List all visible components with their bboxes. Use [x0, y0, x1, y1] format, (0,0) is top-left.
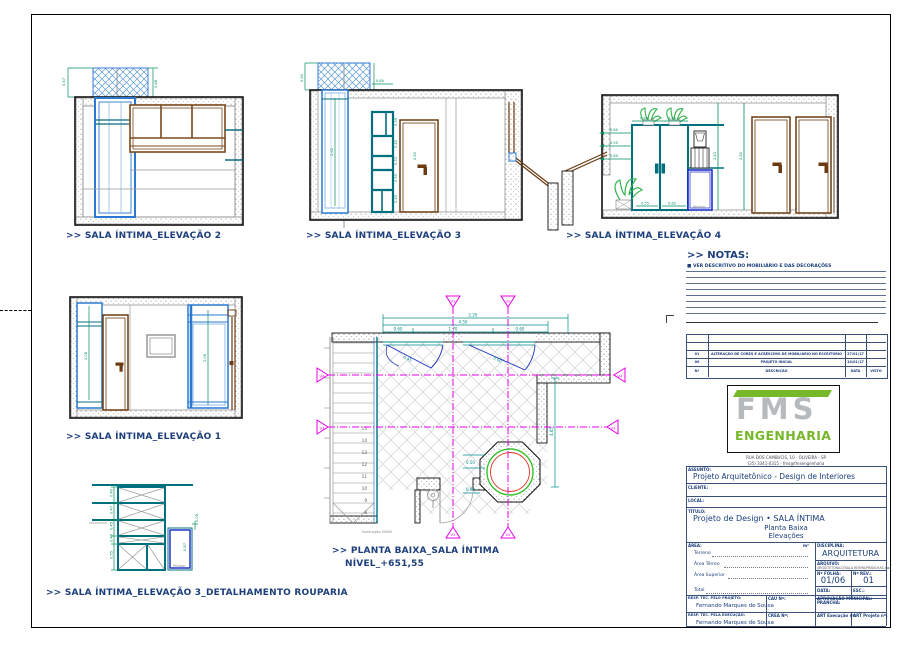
dim-label: 0.80: [376, 79, 385, 83]
dim-label: 0.47: [62, 78, 66, 86]
floor-plan-drawing: 8 9 10 11 12 13 14 15 0.45 0.60: [303, 288, 641, 543]
dim-label: 2.62: [330, 148, 334, 156]
dim-label: 0.33: [394, 157, 398, 165]
dim-label: 2.08: [203, 353, 207, 362]
revision-table-line: [686, 350, 886, 351]
dim-label: 0.90: [466, 487, 475, 492]
wood-door: [400, 120, 438, 212]
leader-line: [712, 555, 808, 557]
dim-label: 0.45: [110, 522, 114, 530]
dim-label: 0.40: [110, 488, 114, 497]
dim-label: 0.50: [300, 73, 304, 82]
wood-window: [130, 105, 225, 152]
titleblock-border: [686, 466, 687, 626]
glass-window: [188, 305, 228, 408]
glass-panel: [77, 303, 102, 408]
dim-label: 0.48: [154, 79, 158, 88]
drawing-sheet: 0.47 0.48 1.05: [0, 0, 922, 654]
area-total: Total: [694, 588, 705, 593]
dim-label: 0.55: [641, 202, 649, 206]
elevation-1-title: >> SALA ÍNTIMA_ELEVAÇÃO 1: [66, 432, 221, 442]
stair-number: 8: [364, 510, 367, 515]
elevation-2-drawing: 0.47 0.48 1.05: [60, 58, 260, 230]
dim-label: 0.35: [394, 118, 398, 126]
revision-number: 01: [686, 352, 708, 356]
elevation-3-title: >> SALA ÍNTIMA_ELEVAÇÃO 3: [306, 231, 461, 241]
cliente-label: CLIENTE:: [688, 485, 708, 490]
area-unit: m²: [803, 543, 809, 548]
dim-label: 0.60: [668, 117, 677, 121]
dim-label: 0.60: [516, 327, 525, 332]
section-marker-label: V4: [319, 374, 325, 379]
rev-value: 01: [851, 576, 886, 586]
titleblock-line: [686, 496, 886, 497]
glazed-door: [95, 98, 135, 217]
titleblock-line: [686, 483, 886, 484]
dim-label: 0.05: [195, 514, 199, 522]
stair-number: 12: [362, 462, 368, 467]
stair-number: 9: [364, 498, 367, 503]
glazed-door: [322, 90, 348, 213]
area-label: ÁREA:: [688, 543, 702, 548]
stair-post: [562, 171, 573, 225]
art-projeto-label: ART Projeto nº:: [853, 613, 888, 618]
company-address-line1: RUA DOS CAMBUCIS, 10 - OLIVEIRA - SP: [686, 455, 886, 460]
stair-number: 10: [362, 486, 368, 491]
minibar-label: Minibar: [173, 564, 186, 568]
revision-header-num: Nº: [686, 369, 708, 373]
fold-mark: [0, 310, 31, 311]
notes-rule: [686, 289, 886, 290]
wood-door: [752, 117, 790, 213]
titleblock-border: [886, 466, 887, 626]
notes-rule: [686, 283, 886, 284]
floor-plan-level: NÍVEL_+651,55: [345, 559, 424, 569]
dim-label: 4.50: [459, 320, 468, 325]
revision-table-line: [686, 342, 886, 343]
resp-execucao-value: Fernando Marques de Sousa: [696, 620, 774, 626]
titleblock-line: [686, 626, 886, 627]
stair-number: 14: [362, 438, 368, 443]
dim-label: 0.40: [394, 194, 398, 203]
notes-rule: [686, 301, 886, 302]
dim-label: 2.50: [413, 151, 417, 160]
floor-plan-title: >> PLANTA BAIXA_SALA ÍNTIMA: [332, 546, 499, 556]
titulo-value: Projeto de Design • SALA ÍNTIMA: [693, 514, 825, 523]
dim-label: 2.08: [84, 351, 88, 360]
dim-label: 2.20: [469, 313, 478, 318]
detail-rouparia-drawing: 0.40 0.47 0.45 0.47 0.55 Minibar 0.05 0.…: [85, 478, 220, 580]
dim-label: 2.43: [713, 152, 717, 160]
resp-projeto-value: Fernando Marques de Sousa: [696, 603, 774, 609]
notes-rule: [686, 277, 886, 278]
dim-label: 0.87: [183, 543, 187, 551]
notes-separator: [686, 322, 878, 323]
revision-description: PROJETO INICIAL: [708, 360, 845, 364]
dim-label: 0.62: [668, 202, 676, 206]
dim-label: 0.60: [610, 154, 619, 158]
disciplina-label: DISCIPLINA:: [817, 543, 844, 548]
section-marker-label: V4: [617, 374, 623, 379]
jacuzzi: [480, 442, 540, 502]
arquivo-value: ARQUITETONICO/SALA INTIMA/PRANCHAS.dwg: [817, 566, 891, 570]
section-marker-label: V3: [319, 426, 325, 431]
esc-label: ESC.:: [853, 588, 865, 593]
elevation-3-drawing: 0.50 0.80 2.62 0.35 0.40: [300, 58, 562, 236]
minibar: Minibar: [688, 170, 712, 210]
minibar: Minibar: [168, 528, 192, 570]
revision-date: 14/01/17: [845, 360, 866, 364]
dim-label: 0.60: [640, 117, 649, 121]
minibar-label: Minibar: [693, 205, 706, 209]
titleblock-line: [686, 542, 886, 543]
elevation-4-title: >> SALA ÍNTIMA_ELEVAÇÃO 4: [566, 231, 721, 241]
revision-table-line: [686, 366, 886, 367]
notes-title: >> NOTAS:: [687, 250, 749, 261]
dim-label: 0.47: [110, 534, 114, 542]
dim-label: 0.47: [110, 506, 114, 514]
logo-engenharia-text: ENGENHARIA: [735, 428, 831, 443]
dim-label: 0.50: [394, 173, 398, 182]
section-marker-label: V1: [450, 532, 456, 537]
leader-line: [706, 592, 808, 594]
revision-number: 00: [686, 360, 708, 364]
data-label: DATA:: [817, 588, 830, 593]
dim-label: 2.50: [739, 151, 743, 160]
notes-rule: [686, 307, 886, 308]
titleblock-line: [686, 466, 886, 467]
disciplina-value: ARQUITETURA: [815, 549, 886, 558]
dim-label: 0.55: [610, 141, 618, 145]
area-terreno: Terreno: [694, 551, 711, 556]
section-marker-label: V3: [610, 426, 616, 431]
revision-header-visto: VISTO: [866, 369, 886, 373]
section-marker-label: V2: [505, 532, 511, 537]
revision-table-line: [686, 358, 886, 359]
section-marker-label: V2: [505, 299, 511, 304]
area-terreo: Área Térreo: [694, 562, 720, 567]
elevation-1-drawing: 2.08 2.08: [60, 290, 255, 428]
titulo-sub2: Elevações: [686, 532, 886, 540]
resp-projeto-label: RESP. TEC. PELO PROJETO:: [688, 596, 741, 600]
revision-date: 27/01/17: [845, 352, 866, 356]
dim-label: 0.60: [610, 128, 619, 132]
folha-value: 01/06: [815, 576, 851, 586]
crea-label: CREA Nº:: [768, 613, 788, 618]
aprovacao-label: APROVAÇÃO MUNICIPAL:: [817, 596, 872, 601]
elevation-2-title: >> SALA ÍNTIMA_ELEVAÇÃO 2: [66, 231, 221, 241]
dim-label: 0.50: [466, 460, 475, 465]
water-cooler: [691, 131, 709, 168]
logo-fms-text: FMS: [736, 392, 818, 426]
dim-label: 4.65: [549, 427, 554, 436]
revision-header-desc: DESCRIÇÃO: [708, 369, 845, 373]
notes-item: ■ VER DESCRITIVO DO MOBILIÁRIO E DAS DEC…: [687, 264, 831, 269]
stair-post: [548, 183, 558, 230]
notes-rule: [686, 313, 886, 314]
corner-mark: [666, 315, 674, 323]
elevation-4-drawing: 0.60 0.55 0.60 0.60 0.60 2.43 2.50 0.55 …: [558, 58, 858, 238]
dim-label: 0.40: [394, 139, 398, 148]
notes-rule: [686, 295, 886, 296]
titleblock-line: [686, 507, 886, 508]
stair-number: 13: [362, 450, 368, 455]
section-marker-label: V1: [450, 299, 456, 304]
leader-line: [724, 566, 808, 568]
art-execucao-label: ART Execução nº:: [817, 613, 856, 618]
company-logo: FMS ENGENHARIA: [727, 385, 840, 453]
lighting-note: Iluminação 3000k: [362, 530, 392, 534]
wood-door: [796, 117, 834, 213]
notes-rule: [686, 271, 886, 272]
dim-label: 0.60: [394, 327, 403, 332]
staircase: 8 9 10 11 12 13 14 15: [324, 337, 377, 523]
closet-cabinet: [118, 487, 165, 570]
area-superior: Área Superior: [694, 573, 725, 578]
revision-description: ALTERAÇÃO DE CORES E ACRÉSCIMO DE MOBILI…: [708, 352, 845, 356]
revision-header-date: DATA: [845, 369, 866, 373]
resp-execucao-label: RESP. TEC. PELA EXECUÇÃO:: [688, 613, 745, 617]
cau-label: CAU Nº:: [768, 596, 786, 601]
wood-door: [103, 315, 128, 410]
dim-label: 0.55: [110, 551, 114, 559]
leader-line: [728, 577, 808, 579]
local-label: LOCAL:: [688, 498, 704, 503]
detail-rouparia-title: >> SALA ÍNTIMA_ELEVAÇÃO 3_DETALHAMENTO R…: [46, 588, 348, 598]
assunto-value: Projeto Arquitetônico - Design de Interi…: [693, 472, 855, 481]
titulo-sub1: Planta Baixa: [686, 524, 886, 532]
stair-number: 11: [362, 474, 368, 479]
